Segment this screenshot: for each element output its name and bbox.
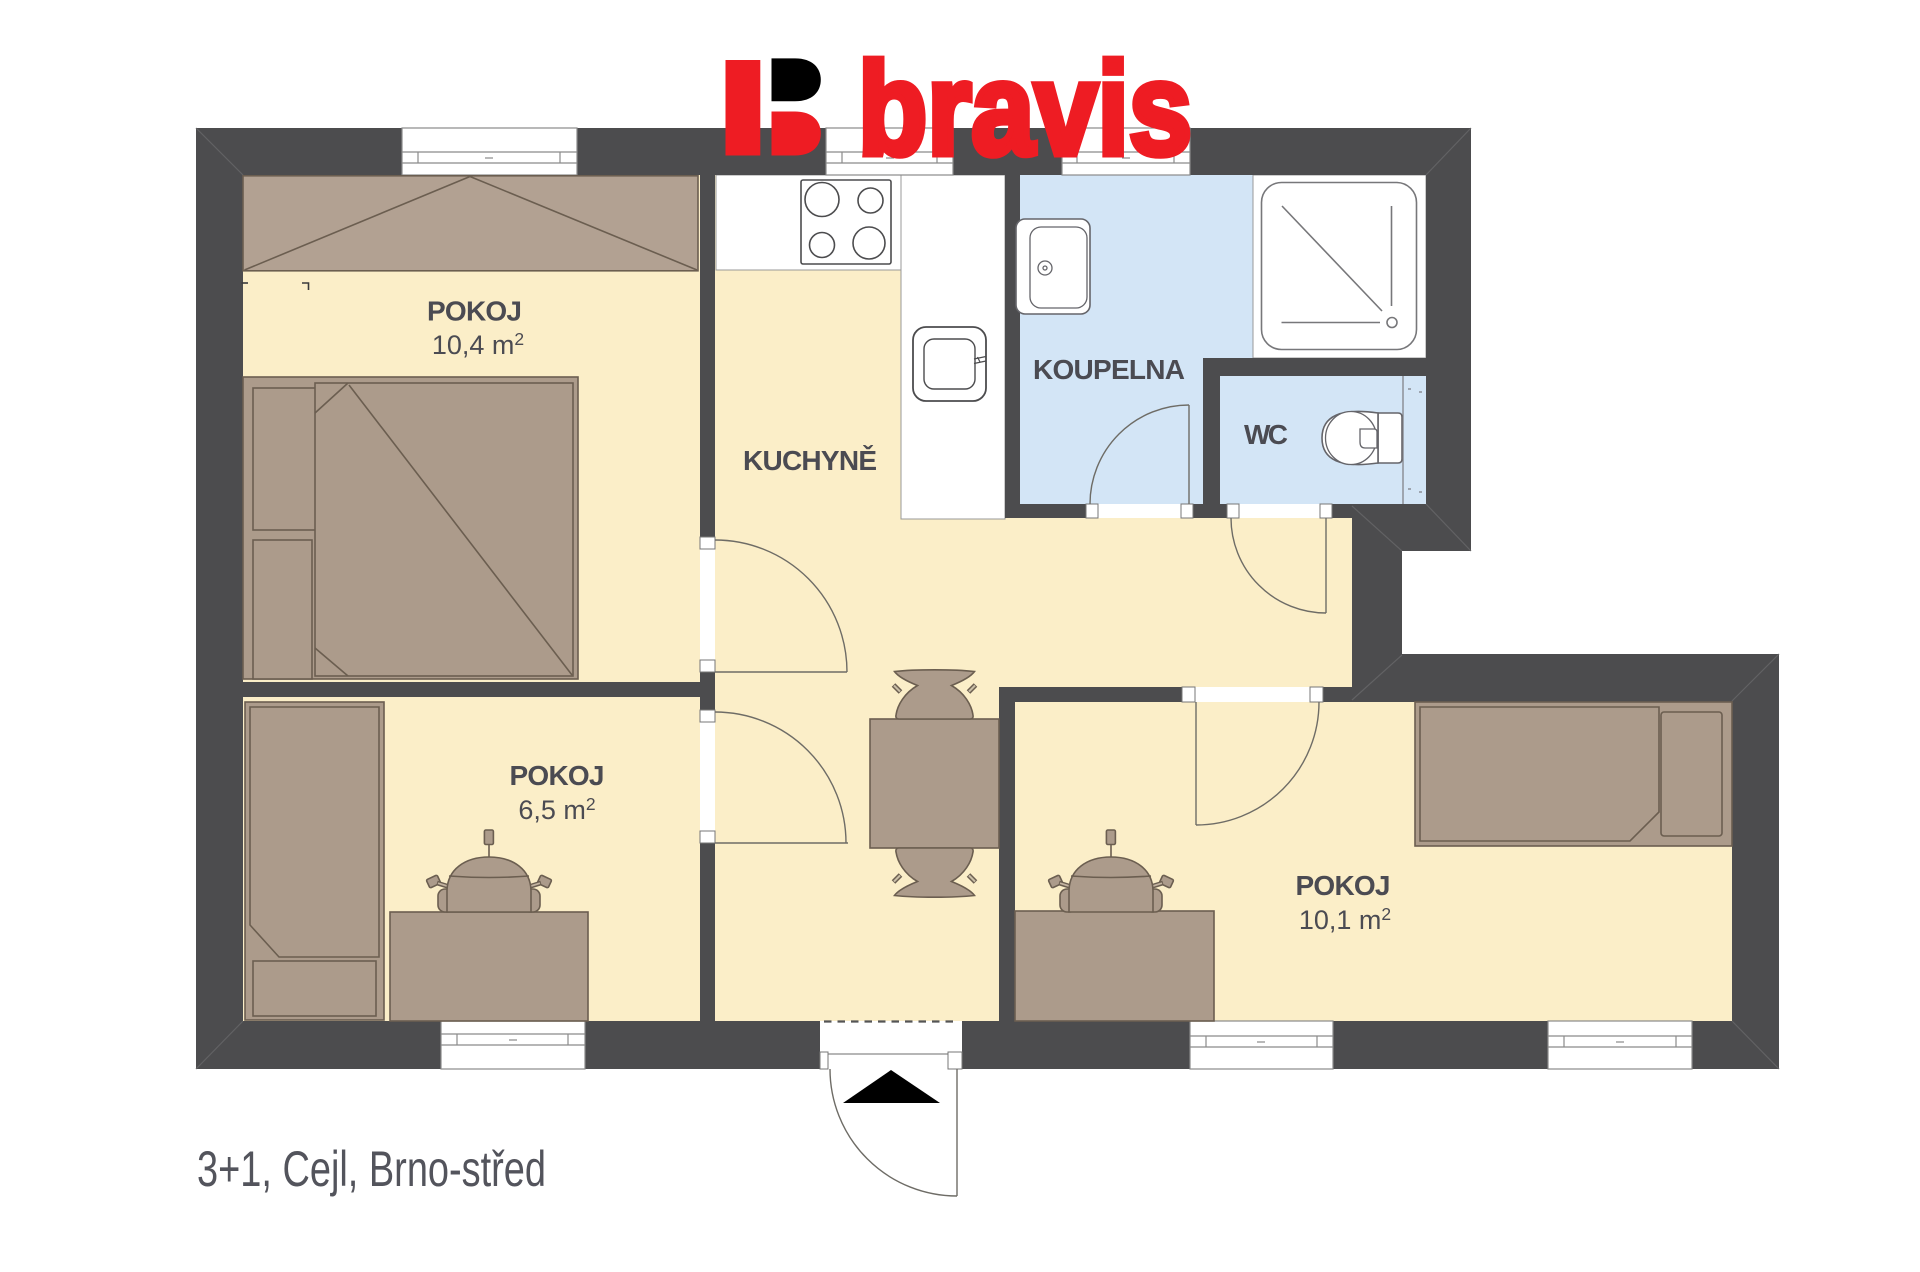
svg-text:3+1, Cejl, Brno-střed: 3+1, Cejl, Brno-střed — [197, 1141, 546, 1197]
svg-text:POKOJ: POKOJ — [427, 296, 522, 327]
svg-text:KOUPELNA: KOUPELNA — [1033, 354, 1185, 385]
svg-text:POKOJ: POKOJ — [510, 760, 605, 791]
svg-text:10,1 m2: 10,1 m2 — [1299, 904, 1391, 935]
svg-text:6,5 m2: 6,5 m2 — [518, 794, 595, 825]
svg-text:10,4 m2: 10,4 m2 — [432, 329, 524, 360]
svg-text:WC: WC — [1244, 419, 1288, 450]
svg-text:bravis: bravis — [858, 35, 1192, 182]
svg-text:POKOJ: POKOJ — [1296, 870, 1391, 901]
svg-text:KUCHYNĚ: KUCHYNĚ — [743, 445, 877, 476]
